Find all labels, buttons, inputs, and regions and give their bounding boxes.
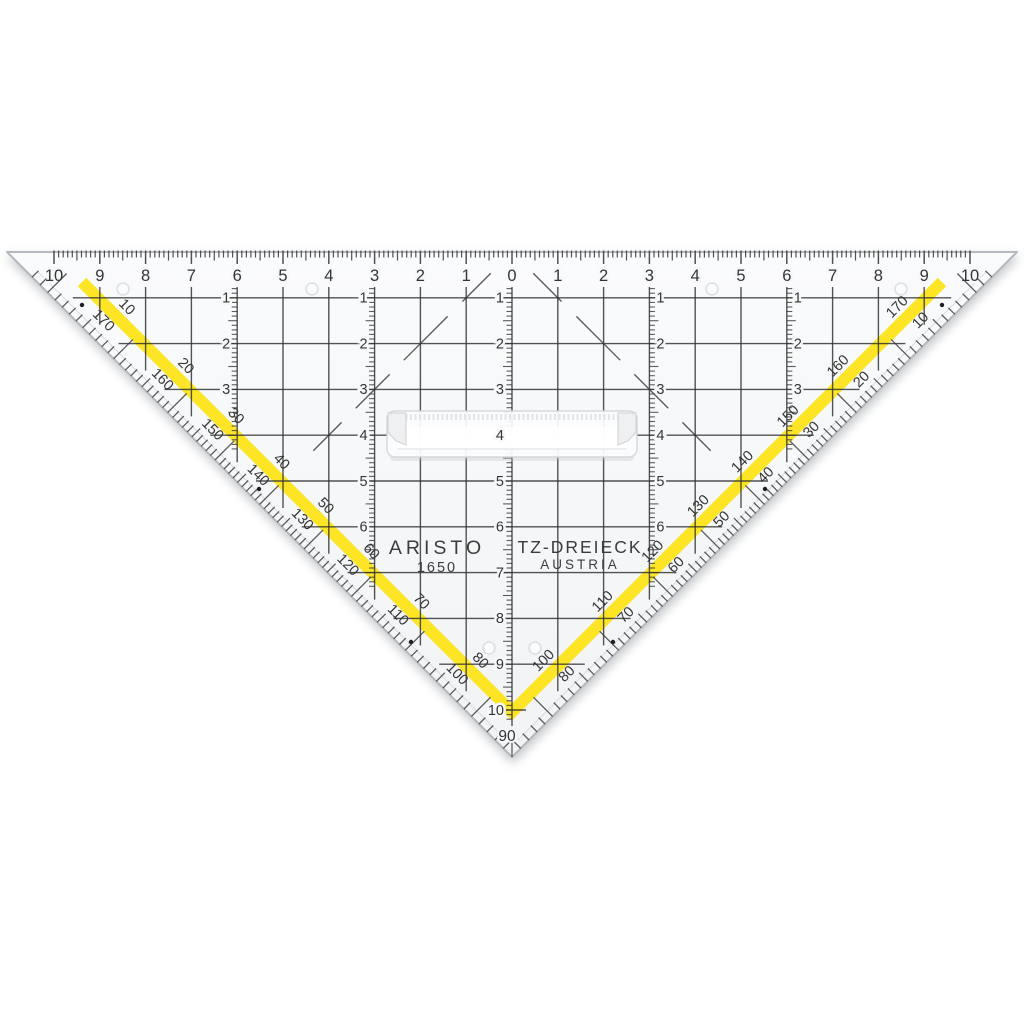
top-scale-number: 10 — [45, 267, 63, 285]
brand-name: ARISTO — [389, 537, 485, 559]
set-square-photo: 10987654321012345678910 1001101201301401… — [0, 0, 1024, 1024]
row-number: 1 — [656, 291, 664, 307]
molded-hole — [895, 283, 907, 295]
top-scale-number: 9 — [95, 267, 104, 285]
row-number: 10 — [488, 703, 504, 719]
row-number: 4 — [496, 428, 504, 444]
top-scale-number: 0 — [507, 267, 516, 285]
top-scale-number: 3 — [645, 267, 654, 285]
row-number: 6 — [656, 520, 664, 536]
top-scale-number: 7 — [187, 267, 196, 285]
top-scale-number: 5 — [736, 267, 745, 285]
row-number: 2 — [656, 336, 664, 352]
top-scale-number: 6 — [782, 267, 791, 285]
handle-face — [397, 427, 627, 449]
row-number: 7 — [496, 565, 504, 581]
index-dot — [409, 640, 413, 644]
row-number: 1 — [360, 291, 368, 307]
index-dot — [257, 487, 261, 491]
top-scale-number: 6 — [233, 267, 242, 285]
top-scale-number: 7 — [828, 267, 837, 285]
product-photo: 10987654321012345678910 1001101201301401… — [0, 0, 1024, 1024]
row-number: 2 — [794, 336, 802, 352]
product-country: AUSTRIA — [540, 557, 620, 572]
molded-hole — [529, 642, 541, 654]
row-number: 4 — [360, 428, 368, 444]
row-number: 2 — [360, 336, 368, 352]
top-scale-number: 5 — [278, 267, 287, 285]
row-number: 5 — [656, 474, 664, 490]
brand-model: 1650 — [417, 560, 457, 576]
row-number: 1 — [794, 291, 802, 307]
molded-hole — [306, 283, 318, 295]
row-number: 5 — [360, 474, 368, 490]
top-scale-number: 1 — [462, 267, 471, 285]
molded-hole — [706, 283, 718, 295]
row-number: 3 — [222, 382, 230, 398]
row-number: 6 — [360, 520, 368, 536]
row-number: 2 — [222, 336, 230, 352]
apex-90-label: 90 — [498, 728, 516, 745]
row-number: 2 — [496, 336, 504, 352]
row-number: 1 — [222, 291, 230, 307]
row-number: 3 — [794, 382, 802, 398]
index-dot — [611, 640, 615, 644]
row-number: 9 — [496, 657, 504, 673]
row-number: 8 — [496, 611, 504, 627]
top-scale-number: 2 — [416, 267, 425, 285]
molded-hole — [117, 283, 129, 295]
top-scale-number: 1 — [553, 267, 562, 285]
top-scale-number: 8 — [874, 267, 883, 285]
top-scale-number: 9 — [920, 267, 929, 285]
removable-handle — [387, 411, 637, 461]
index-dot — [763, 487, 767, 491]
row-number: 5 — [496, 474, 504, 490]
top-scale-number: 2 — [599, 267, 608, 285]
row-number: 3 — [360, 382, 368, 398]
top-scale-number: 4 — [324, 267, 333, 285]
row-number: 3 — [496, 382, 504, 398]
row-number: 4 — [656, 428, 664, 444]
top-scale-number: 3 — [370, 267, 379, 285]
index-dot — [80, 303, 84, 307]
top-scale-number: 10 — [961, 267, 979, 285]
index-dot — [940, 303, 944, 307]
row-number: 3 — [656, 382, 664, 398]
top-scale-number: 8 — [141, 267, 150, 285]
molded-hole — [483, 642, 495, 654]
row-number: 1 — [496, 291, 504, 307]
product-type: TZ-DREIECK — [518, 537, 643, 557]
row-number: 6 — [496, 520, 504, 536]
top-scale-number: 4 — [691, 267, 700, 285]
